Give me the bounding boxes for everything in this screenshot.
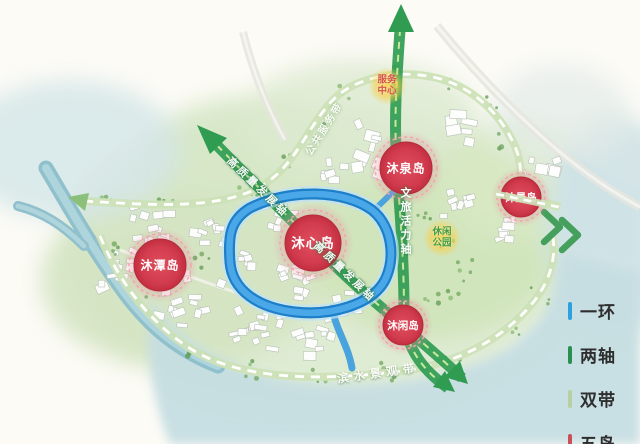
legend-label: 两轴 <box>580 342 616 367</box>
leisure-park-glow <box>423 219 461 257</box>
legend-item-islands: 五岛 <box>568 430 616 444</box>
island-marker-muquan: 沐泉岛 <box>368 130 444 206</box>
island-marker-muxin: 沐心岛 <box>272 202 354 284</box>
legend-item-belts: 双带 <box>568 386 616 411</box>
island-label: 沐闲岛 <box>387 319 419 332</box>
island-label: 沐心岛 <box>291 235 335 251</box>
legend-swatch-belts <box>568 390 572 408</box>
legend: 一环 两轴 双带 五岛 <box>568 298 616 444</box>
legend-label: 双带 <box>580 386 616 411</box>
planning-map: 沐心岛 沐泉岛 沐景岛 沐潭岛 沐闲岛 高质量发展轴 高质量发展轴 文旅活力轴 … <box>0 0 640 444</box>
service-center-glow <box>368 67 406 105</box>
map-illustration: 沐心岛 沐泉岛 沐景岛 沐潭岛 沐闲岛 <box>0 0 640 444</box>
island-marker-mutan: 沐潭岛 <box>122 227 198 303</box>
legend-swatch-ring <box>568 302 572 320</box>
island-marker-muxian: 沐闲岛 <box>373 295 433 355</box>
legend-label: 五岛 <box>580 430 616 444</box>
legend-swatch-axes <box>568 346 572 364</box>
legend-item-ring: 一环 <box>568 298 616 323</box>
island-label: 沐潭岛 <box>140 258 179 273</box>
legend-label: 一环 <box>580 298 616 323</box>
legend-swatch-islands <box>568 434 572 444</box>
legend-item-axes: 两轴 <box>568 342 616 367</box>
island-label: 沐泉岛 <box>386 161 425 176</box>
